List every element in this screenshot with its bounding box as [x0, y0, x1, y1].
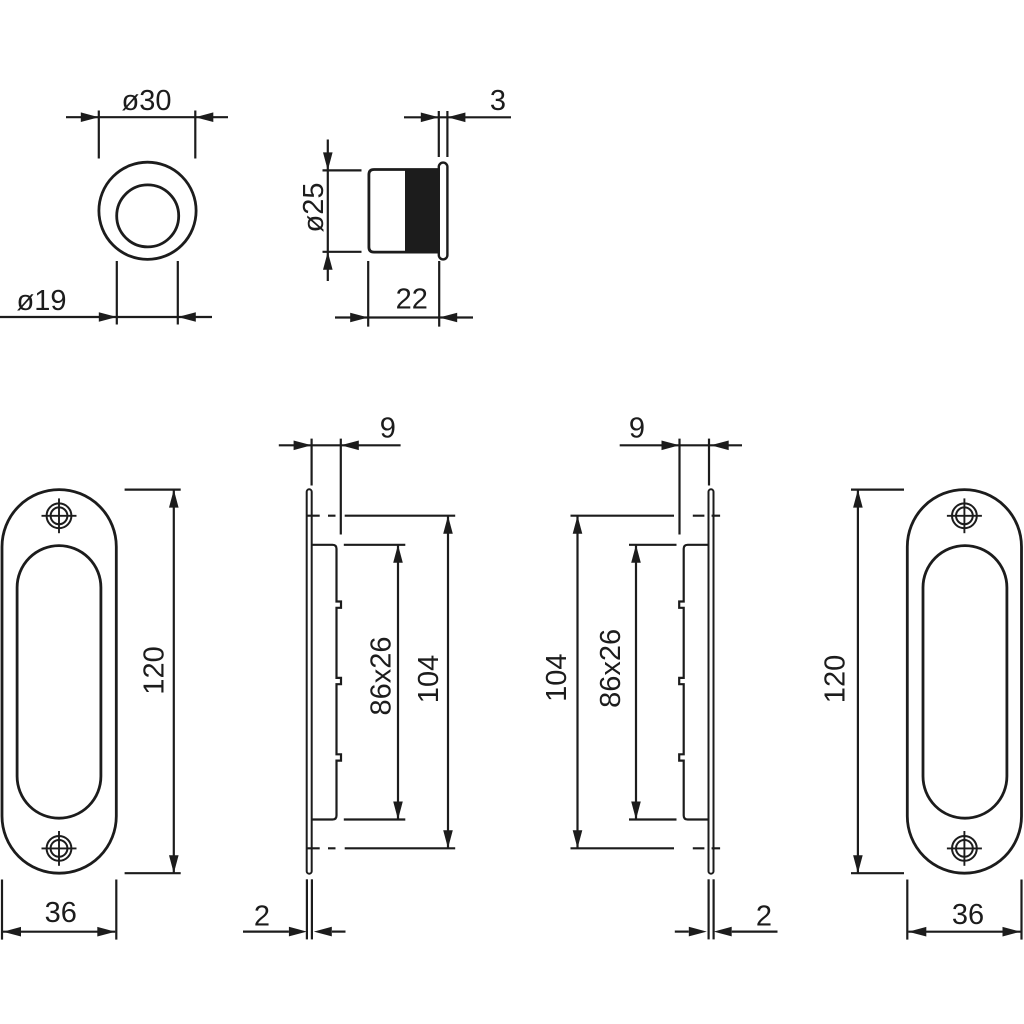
svg-text:104: 104 [541, 654, 573, 702]
svg-text:36: 36 [45, 897, 77, 929]
svg-text:120: 120 [820, 655, 852, 703]
svg-text:86x26: 86x26 [595, 629, 627, 708]
svg-text:9: 9 [380, 413, 396, 445]
svg-text:2: 2 [756, 901, 772, 933]
svg-text:9: 9 [629, 413, 645, 445]
svg-text:22: 22 [396, 284, 428, 316]
svg-text:ø30: ø30 [122, 85, 172, 117]
svg-text:86x26: 86x26 [366, 636, 398, 715]
svg-text:2: 2 [254, 901, 270, 933]
svg-text:120: 120 [139, 646, 171, 694]
svg-text:36: 36 [952, 899, 984, 931]
svg-text:ø19: ø19 [17, 285, 67, 317]
svg-text:ø25: ø25 [298, 183, 330, 233]
svg-text:104: 104 [413, 655, 445, 703]
svg-text:3: 3 [490, 85, 506, 117]
